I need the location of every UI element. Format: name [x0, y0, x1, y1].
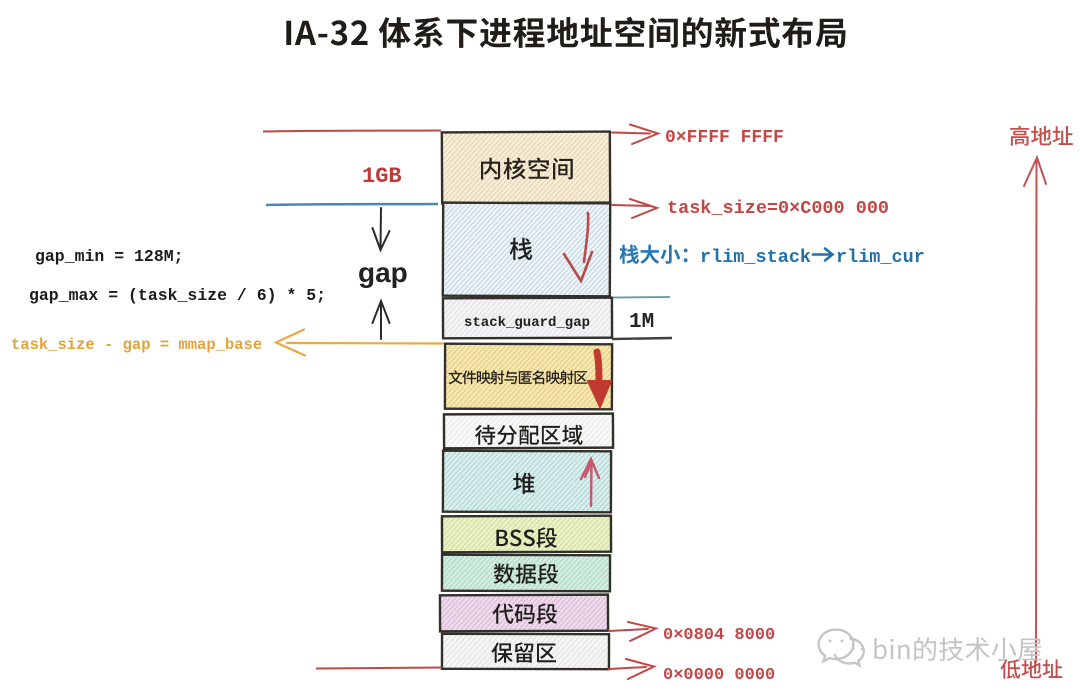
svg-text:rlim_cur: rlim_cur — [836, 247, 925, 268]
svg-text:0×0804 8000: 0×0804 8000 — [663, 626, 775, 645]
svg-text:task_size - gap = mmap_base: task_size - gap = mmap_base — [11, 336, 262, 354]
svg-text:gap_max = (task_size / 6) * 5;: gap_max = (task_size / 6) * 5; — [29, 286, 326, 305]
svg-text:gap: gap — [358, 257, 408, 288]
svg-text:1M: 1M — [629, 311, 654, 334]
svg-text:task_size=0×C000 000: task_size=0×C000 000 — [667, 198, 889, 219]
svg-text:1GB: 1GB — [362, 164, 402, 189]
svg-text:stack_guard_gap: stack_guard_gap — [464, 315, 590, 331]
svg-text:0×0000 0000: 0×0000 0000 — [663, 666, 775, 685]
svg-text:rlim_stack: rlim_stack — [700, 247, 811, 268]
svg-text:gap_min = 128M;: gap_min = 128M; — [35, 247, 184, 266]
svg-text:0×FFFF FFFF: 0×FFFF FFFF — [665, 128, 784, 148]
